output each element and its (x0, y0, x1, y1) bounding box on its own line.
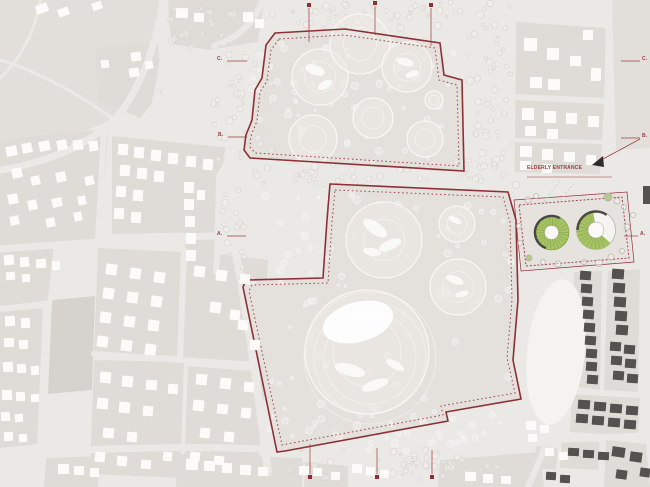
tree-icon (307, 8, 313, 14)
tree-icon (509, 142, 513, 146)
building-footprint-white (249, 339, 260, 350)
tree-icon (422, 462, 429, 469)
tree-icon (501, 151, 505, 155)
tree-icon (222, 199, 229, 206)
tree-icon (457, 431, 462, 436)
tree-icon (285, 111, 292, 118)
tree-icon (285, 252, 291, 258)
tree-icon (476, 112, 479, 115)
building-footprint-white (88, 140, 98, 151)
tree-icon (370, 415, 373, 418)
building-footprint-white (45, 217, 56, 228)
building-footprint-white (5, 316, 16, 327)
tree-icon (622, 205, 627, 210)
tree-icon (437, 450, 440, 453)
tree-icon (450, 416, 455, 421)
building-footprint-white (219, 377, 231, 389)
tree-icon (302, 213, 309, 220)
tree-icon (467, 53, 471, 57)
building-footprint-white (299, 466, 309, 475)
tree-icon (263, 193, 270, 200)
tree-icon (226, 42, 229, 45)
building-footprint-white (9, 215, 20, 226)
building-footprint-white (540, 425, 549, 433)
building-footprint-white (129, 267, 141, 279)
tree-icon (534, 194, 539, 199)
road (645, 150, 647, 272)
building-footprint-white (366, 467, 375, 476)
building-footprint-dark (582, 297, 594, 307)
building-footprint-dark (560, 475, 570, 484)
tree-icon (501, 250, 509, 258)
tree-icon (267, 427, 272, 432)
tree-icon (222, 223, 226, 227)
building-footprint-white (74, 466, 84, 475)
tree-icon (456, 244, 460, 248)
building-footprint-dark (625, 359, 637, 369)
building-footprint-white (30, 175, 41, 186)
building-footprint-white (547, 48, 559, 60)
tree-icon (497, 136, 500, 139)
tree-icon (264, 165, 270, 171)
building-footprint-white (120, 339, 132, 351)
tree-icon (482, 7, 486, 11)
section-marker (430, 475, 434, 479)
tree-icon (485, 27, 488, 30)
building-footprint-white (131, 212, 142, 224)
tree-icon (582, 260, 587, 265)
tree-icon (436, 7, 443, 14)
building-footprint-dark (598, 452, 609, 461)
tree-icon (479, 468, 483, 472)
section-label-b-left: B. (218, 133, 223, 138)
tree-icon (401, 462, 406, 467)
building-footprint-white (501, 476, 511, 484)
building-footprint-dark (624, 420, 637, 430)
tree-icon (257, 141, 263, 147)
tree-icon (442, 460, 446, 464)
building-footprint-white (530, 77, 542, 88)
building-footprint-white (224, 432, 235, 443)
building-footprint-white (19, 340, 28, 349)
tree-icon (391, 440, 398, 447)
tree-icon (412, 456, 417, 461)
tree-icon (240, 265, 245, 270)
tree-icon (417, 478, 421, 482)
tree-icon (484, 57, 487, 60)
building-footprint-white (15, 414, 23, 422)
garden-circle (330, 14, 390, 74)
building-footprint-dark (583, 450, 594, 459)
tree-icon (417, 176, 423, 182)
tree-icon (403, 448, 409, 454)
tree-icon (401, 106, 406, 111)
building-footprint-white (58, 464, 69, 474)
building-footprint-white (313, 468, 322, 476)
tree-icon (444, 464, 451, 471)
tree-icon (224, 226, 230, 232)
tree-icon (506, 243, 512, 249)
tree-icon (448, 0, 453, 5)
tree-icon (408, 6, 414, 12)
tree-icon (281, 260, 288, 267)
tree-icon (300, 450, 302, 452)
building-footprint-white (11, 167, 23, 179)
building-footprint-white (133, 190, 144, 202)
building-footprint-dark (586, 362, 598, 372)
building-footprint-white (192, 399, 204, 411)
tree-icon (351, 175, 357, 181)
building-footprint-dark (592, 416, 605, 426)
tree-icon (471, 31, 478, 38)
garden-circle (425, 91, 443, 109)
tree-icon (404, 165, 411, 172)
city-block (612, 0, 650, 150)
tree-icon (322, 26, 325, 29)
tree-icon (337, 284, 339, 286)
tree-icon (410, 472, 413, 475)
building-footprint-white (137, 168, 148, 180)
tree-icon (303, 305, 306, 308)
tree-icon (274, 79, 280, 85)
tree-icon (339, 273, 345, 279)
building-footprint-white (547, 129, 558, 139)
tree-icon (423, 6, 426, 9)
building-footprint-white (22, 274, 31, 283)
building-footprint-white (146, 380, 158, 391)
tree-icon (459, 176, 463, 180)
tree-icon (327, 459, 334, 466)
tree-icon (469, 422, 475, 428)
building-footprint-dark (615, 311, 628, 322)
tree-icon (309, 21, 314, 26)
section-label-a-left: A. (217, 232, 222, 237)
tree-icon (430, 161, 436, 167)
building-footprint-white (559, 452, 568, 460)
building-footprint-dark (629, 451, 642, 463)
tree-icon (353, 196, 361, 204)
building-footprint-white (229, 309, 240, 320)
tree-icon (329, 10, 332, 13)
tree-icon (496, 130, 500, 134)
tree-icon (228, 253, 231, 256)
tree-icon (475, 122, 482, 129)
tree-icon (437, 235, 440, 238)
tree-icon (513, 182, 520, 189)
building-footprint-white (1, 412, 10, 421)
building-footprint-dark (581, 284, 593, 294)
building-footprint-white (134, 147, 145, 159)
building-footprint-white (168, 153, 179, 165)
building-footprint-white (153, 271, 165, 283)
tree-icon (492, 67, 495, 70)
tree-icon (366, 447, 371, 452)
building-footprint-white (209, 301, 221, 313)
tree-icon (488, 118, 493, 123)
building-footprint-white (4, 255, 15, 266)
tree-icon (441, 162, 447, 168)
tree-icon (452, 339, 459, 346)
tree-icon (486, 59, 492, 65)
building-footprint-white (20, 257, 30, 268)
building-footprint-white (542, 149, 553, 160)
tree-icon (223, 19, 226, 22)
tree-icon (269, 379, 274, 384)
building-footprint-dark (639, 467, 650, 477)
tree-icon (310, 297, 317, 304)
tree-icon (497, 51, 502, 56)
building-footprint-dark (576, 414, 589, 424)
building-footprint-white (526, 421, 536, 431)
building-footprint-white (163, 452, 173, 462)
tree-icon (499, 422, 501, 424)
tree-icon (270, 11, 276, 17)
building-footprint-dark (615, 469, 627, 479)
tree-icon (168, 16, 174, 22)
tree-icon (264, 94, 268, 98)
tree-icon (340, 176, 344, 180)
building-footprint-dark (627, 374, 639, 384)
tree-icon (620, 249, 625, 254)
tree-icon (230, 81, 234, 85)
building-footprint-white (186, 459, 198, 470)
building-footprint-white (255, 19, 264, 28)
tree-icon (283, 407, 286, 410)
building-footprint-white (176, 8, 189, 19)
tree-icon (397, 24, 404, 31)
tree-icon (447, 440, 454, 447)
tree-icon (340, 13, 344, 17)
building-footprint-white (52, 261, 61, 271)
tree-icon (289, 468, 292, 471)
building-footprint-dark (611, 446, 625, 458)
tree-icon (503, 270, 507, 274)
tree-icon (317, 196, 320, 199)
building-footprint-white (55, 171, 67, 183)
tree-icon (208, 19, 213, 24)
building-footprint-white (240, 465, 251, 475)
tree-icon (224, 193, 228, 197)
tree-icon (511, 193, 515, 197)
tree-icon (440, 124, 444, 128)
tree-icon (239, 155, 243, 159)
tree-icon (277, 382, 281, 386)
tree-icon (272, 415, 275, 418)
building-footprint-dark (626, 406, 639, 416)
tree-icon (505, 64, 509, 68)
building-footprint-white (96, 335, 108, 347)
building-footprint-white (144, 343, 156, 355)
tree-icon (506, 287, 512, 293)
building-footprint-white (105, 263, 117, 275)
tree-icon (290, 434, 294, 438)
tree-icon (294, 179, 298, 183)
tree-icon (454, 439, 460, 445)
section-marker (308, 475, 312, 479)
tree-icon (555, 261, 561, 267)
tree-icon (218, 44, 221, 47)
tree-icon (614, 198, 620, 204)
building-footprint-white (114, 208, 125, 220)
tree-icon (342, 1, 348, 7)
tree-icon (489, 412, 495, 418)
tree-icon (502, 48, 506, 52)
tree-icon (483, 132, 490, 139)
building-footprint-dark (546, 472, 556, 481)
building-footprint-white (195, 373, 207, 385)
building-footprint-dark (643, 186, 650, 204)
tree-icon (376, 80, 383, 87)
tree-icon (281, 45, 287, 51)
tree-icon (270, 95, 276, 101)
section-marker (375, 475, 379, 479)
garden-circle (346, 202, 422, 278)
tree-icon (348, 157, 354, 163)
building-footprint-white (72, 139, 83, 150)
tree-icon (482, 23, 485, 26)
tree-icon (270, 66, 272, 68)
building-footprint-white (99, 311, 111, 323)
tree-icon (490, 209, 496, 215)
tree-icon (258, 53, 264, 59)
building-footprint-white (100, 59, 109, 68)
city-block (48, 296, 95, 394)
tree-icon (495, 465, 500, 470)
tree-icon (406, 465, 409, 468)
tree-icon (541, 260, 546, 265)
building-footprint-white (21, 318, 31, 328)
tree-icon (475, 99, 481, 105)
tree-icon (405, 430, 410, 435)
tree-icon (258, 117, 263, 122)
building-footprint-white (168, 384, 179, 395)
building-footprint-dark (594, 402, 607, 412)
building-footprint-white (331, 472, 340, 480)
tree-icon (252, 61, 257, 66)
building-footprint-white (147, 319, 159, 331)
tree-icon (485, 463, 491, 469)
building-footprint-white (102, 287, 114, 299)
building-footprint-white (130, 51, 141, 61)
building-footprint-white (525, 126, 536, 136)
building-footprint-white (7, 193, 19, 205)
building-footprint-white (95, 452, 106, 463)
tree-icon (454, 454, 460, 460)
tree-icon (445, 15, 448, 18)
section-label-c-right: C. (642, 57, 647, 62)
building-footprint-dark (616, 325, 629, 336)
garden-circle (407, 121, 443, 157)
building-footprint-white (528, 434, 537, 442)
tree-icon (479, 150, 486, 157)
tree-icon (239, 79, 242, 82)
building-footprint-white (128, 67, 139, 77)
building-footprint-white (143, 406, 154, 417)
building-footprint-white (465, 472, 476, 481)
building-footprint-white (566, 113, 577, 124)
building-footprint-white (17, 364, 26, 373)
building-footprint-white (203, 159, 214, 171)
tree-icon (467, 158, 472, 163)
tree-icon (302, 462, 306, 466)
tree-icon (495, 62, 500, 67)
tree-icon (424, 455, 429, 460)
building-footprint-white (2, 390, 13, 401)
tree-icon (237, 106, 243, 112)
tree-icon (447, 84, 449, 86)
tree-icon (432, 409, 436, 413)
tree-icon (308, 169, 315, 176)
building-footprint-dark (583, 310, 595, 320)
tree-icon (313, 426, 315, 428)
tree-icon (268, 80, 274, 86)
building-footprint-white (97, 398, 109, 410)
tree-icon (389, 470, 397, 478)
building-footprint-dark (584, 323, 596, 333)
tree-icon (526, 255, 532, 261)
tree-icon (305, 427, 312, 434)
tree-icon (451, 51, 456, 56)
tree-icon (296, 249, 300, 253)
tree-icon (268, 68, 270, 70)
road (511, 0, 513, 180)
tree-icon (242, 102, 245, 105)
building-footprint-white (583, 30, 593, 40)
tree-icon (427, 14, 430, 17)
building-footprint-white (21, 142, 33, 154)
tree-icon (440, 473, 445, 478)
building-footprint-white (239, 273, 250, 284)
tree-icon (232, 84, 236, 88)
tree-icon (292, 10, 295, 13)
tree-icon (230, 11, 237, 18)
building-footprint-white (222, 463, 232, 473)
tree-icon (517, 224, 522, 229)
tree-icon (242, 54, 249, 61)
tree-icon (518, 241, 523, 246)
tree-icon (491, 161, 497, 167)
building-footprint-white (524, 38, 537, 51)
building-footprint-white (193, 265, 205, 277)
building-footprint-dark (585, 336, 597, 346)
building-footprint-dark (612, 269, 625, 280)
tree-icon (376, 173, 383, 180)
tree-icon (438, 435, 443, 440)
road (602, 262, 604, 392)
building-footprint-white (36, 259, 47, 269)
tree-icon (402, 148, 407, 153)
tree-icon (224, 240, 231, 247)
tree-icon (390, 448, 397, 455)
tree-icon (385, 436, 389, 440)
building-footprint-white (150, 295, 162, 307)
building-footprint-white (84, 175, 95, 186)
building-footprint-white (185, 216, 195, 227)
tree-icon (236, 188, 241, 193)
tree-icon (290, 376, 293, 379)
tree-icon (472, 435, 478, 441)
tree-icon (262, 128, 265, 131)
building-footprint-white (564, 152, 575, 162)
tree-icon (624, 224, 630, 230)
building-footprint-white (258, 467, 268, 476)
building-footprint-white (6, 272, 16, 281)
tree-icon (479, 178, 484, 183)
tree-icon (219, 33, 224, 38)
tree-icon (480, 163, 487, 170)
tree-icon (226, 117, 233, 124)
tree-icon (314, 109, 316, 111)
